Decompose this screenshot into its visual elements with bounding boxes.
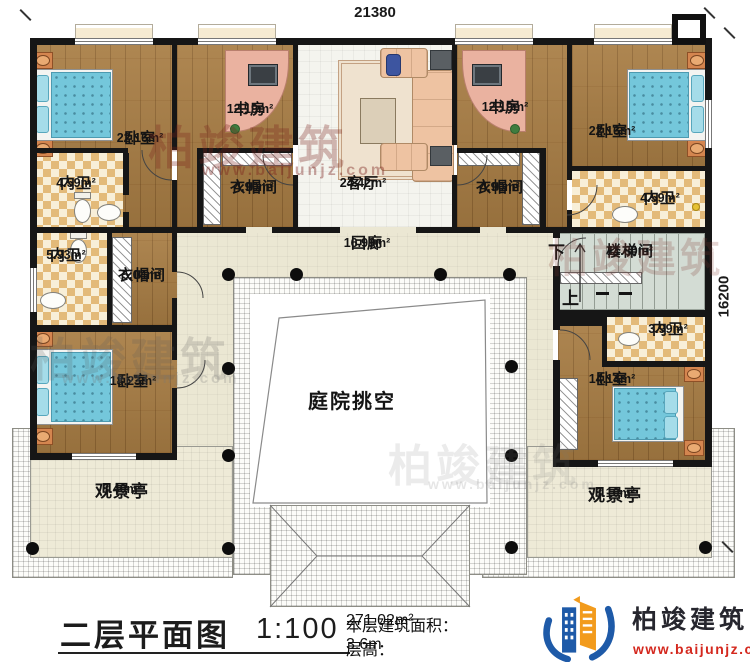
pillow (691, 106, 704, 133)
closet-rack (203, 152, 221, 225)
wall (567, 210, 572, 227)
room-area: 8.40m² (102, 482, 142, 496)
pillow (664, 391, 678, 414)
wall (172, 227, 177, 272)
room-area: 5.04m² (122, 268, 162, 282)
column-dot (222, 268, 235, 281)
floor-pavilion-left (30, 446, 233, 558)
wall (172, 45, 177, 150)
wall (293, 45, 298, 145)
computer-monitor (248, 64, 278, 86)
wall (457, 148, 546, 153)
door-opening (480, 227, 506, 233)
room-area: 12.19m² (482, 100, 529, 114)
wall (553, 360, 560, 467)
wall (30, 325, 177, 332)
room-area: 8.10m² (595, 486, 635, 500)
chimney (672, 14, 706, 44)
room-area: 4.59m² (640, 191, 680, 205)
pillow (664, 416, 678, 439)
room-area: 5.93m² (46, 248, 86, 262)
plan-scale: 1:100 (256, 613, 339, 646)
column-dot (222, 449, 235, 462)
toilet-tank (74, 192, 91, 199)
wall (30, 38, 37, 460)
window (705, 100, 712, 148)
wall (553, 310, 603, 326)
nightstand (687, 140, 707, 157)
wall (452, 45, 457, 145)
window (75, 38, 153, 45)
window (198, 38, 276, 45)
story-height-value: 3.6m (346, 636, 382, 654)
floor-area-value: 271.02m² (346, 612, 414, 630)
nightstand (684, 440, 704, 456)
wall (123, 153, 129, 195)
wall (203, 148, 293, 153)
nightstand (687, 52, 707, 69)
sofa (380, 143, 428, 171)
window (598, 460, 673, 467)
toilet (74, 199, 91, 223)
stair-down-label: 下 (548, 238, 565, 263)
sink (40, 292, 66, 309)
column-dot (222, 362, 235, 375)
door-opening (246, 227, 272, 233)
room-label-courtyard: 庭院挑空 (308, 385, 396, 414)
room-area: 12.19m² (227, 102, 274, 116)
door-opening (340, 227, 416, 233)
wall (107, 232, 112, 327)
bed-mattress (51, 72, 111, 138)
wall (452, 175, 457, 227)
pillow (36, 106, 49, 133)
room-area: 11.80m² (607, 244, 653, 258)
room-area: 14.14m² (589, 372, 636, 386)
window (594, 38, 672, 45)
room-area: 18.23m² (110, 374, 157, 388)
wall (540, 148, 546, 227)
stair-direction-dash (596, 292, 609, 295)
column-dot (290, 268, 303, 281)
window (72, 453, 136, 460)
person-figure (386, 54, 401, 76)
corridor-right (527, 277, 553, 460)
column-dot (26, 542, 39, 555)
toilet-tank (70, 232, 87, 239)
sink (97, 204, 121, 221)
column-dot (699, 541, 712, 554)
wall (172, 180, 177, 227)
coffee-table (360, 98, 396, 144)
pillow (691, 75, 704, 102)
column-dot (222, 542, 235, 555)
wall (293, 175, 298, 227)
floor-plan-canvas: 21380 16200 卧室 22.16m² 书房 12.19m² 客厅 24.… (0, 0, 750, 672)
dimension-right: 16200 (716, 267, 733, 327)
title-underline (58, 652, 350, 654)
plant (230, 124, 240, 134)
room-area: 16.99m² (344, 236, 391, 250)
brand-logo-icon (540, 596, 618, 662)
room-area: 4.90m² (480, 180, 520, 194)
pillow (36, 75, 49, 102)
window (455, 38, 533, 45)
dimension-top: 21380 (340, 4, 410, 21)
room-area: 22.16m² (589, 124, 636, 138)
column-dot (434, 268, 447, 281)
wall (172, 298, 177, 360)
window (30, 268, 37, 312)
computer-monitor (472, 64, 502, 86)
pillow (36, 356, 49, 384)
plant (510, 124, 520, 134)
column-dot (505, 449, 518, 462)
room-area: 4.59m² (56, 176, 96, 190)
side-table (430, 146, 452, 166)
stair-railing (560, 272, 642, 284)
wall (602, 361, 707, 367)
room-area: 3.99m² (648, 322, 688, 336)
room-area: 22.16m² (117, 131, 164, 145)
column-dot (505, 360, 518, 373)
wall (172, 388, 177, 455)
wall (602, 317, 607, 367)
dimension-tick (723, 27, 735, 39)
wall (123, 212, 129, 227)
side-table (430, 50, 452, 70)
bed-mattress (51, 352, 111, 422)
sink (612, 206, 638, 223)
wall (30, 148, 128, 153)
wall (553, 227, 560, 238)
nightstand (684, 366, 704, 382)
entrance-roof (270, 505, 470, 607)
wall (567, 166, 710, 171)
brand-name: 柏竣建筑 (632, 600, 748, 636)
stair-up-label: 上 (562, 284, 579, 309)
closet-rack (558, 378, 578, 450)
column-dot (505, 541, 518, 554)
room-area: 4.90m² (234, 180, 274, 194)
column-dot (503, 268, 516, 281)
stair-direction-dash (619, 292, 632, 295)
pillow (36, 388, 49, 416)
dimension-tick (19, 9, 31, 21)
floor-bath-r1 (572, 171, 705, 227)
plan-title: 二层平面图 (60, 610, 230, 655)
brand-website: www.baijunjz.com (633, 641, 750, 657)
room-area: 24.42m² (340, 176, 387, 190)
lamp-fixture (692, 203, 700, 211)
wall (567, 45, 572, 180)
sink (618, 332, 640, 346)
bed-mattress (629, 72, 689, 138)
closet-rack (522, 152, 540, 225)
wall (197, 148, 203, 227)
